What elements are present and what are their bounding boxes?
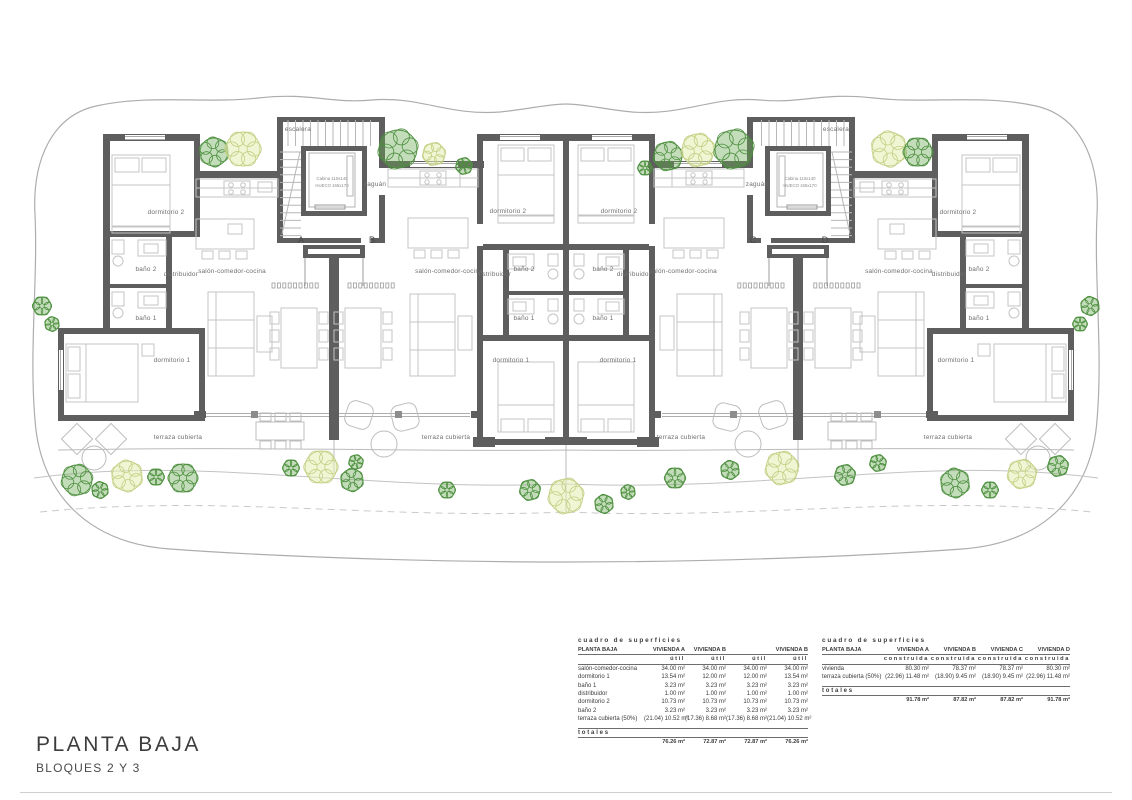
tree	[941, 468, 970, 498]
tree	[168, 464, 198, 492]
room-label-dormitorio1-b: dormitorio 1	[493, 357, 530, 364]
tree	[1072, 317, 1087, 331]
table-row-header: PLANTA BAJA	[578, 646, 644, 654]
table-value: 3.23 m²	[644, 682, 685, 690]
table-title: cuadro de superficies	[578, 637, 808, 644]
tree	[834, 464, 855, 485]
table-value: 80.30 m²	[882, 665, 929, 673]
table-value: (17.36) 8.68 m²	[726, 715, 767, 723]
room-label-dormitorio2-b: dormitorio 2	[490, 208, 527, 215]
section-mark-d: D	[822, 235, 829, 246]
table-value: (17.36) 8.68 m²	[685, 715, 726, 723]
table-value: 34.00 m²	[644, 665, 685, 673]
tree	[304, 451, 339, 483]
tree	[200, 137, 229, 167]
section-mark-b: B	[369, 235, 375, 246]
room-label-bano2-c: baño 2	[592, 266, 613, 273]
tree	[45, 316, 59, 331]
table-value: 12.00 m²	[726, 673, 767, 681]
tree	[92, 481, 108, 498]
table-row-label: vivienda	[822, 665, 882, 673]
table-value: 12.00 m²	[685, 673, 726, 681]
section-mark-a: A	[298, 235, 305, 246]
room-label-dormitorio2-d: dormitorio 2	[940, 209, 977, 216]
tree	[32, 297, 51, 315]
table-row-label: dormitorio 1	[578, 673, 644, 681]
tree	[282, 460, 299, 476]
floor-plan-sheet: dormitorio 2 baño 2 baño 1 distribuidor …	[0, 0, 1132, 800]
table-value: 34.00 m²	[767, 665, 808, 673]
elevator-label-1-line1: Cabina 110x140	[317, 176, 349, 181]
table-total-value: 87.82 m²	[929, 696, 976, 704]
table-sub-header: útil	[726, 655, 767, 663]
room-label-terraza-a: terraza cubierta	[154, 434, 203, 441]
table-row-label: terraza cubierta (50%)	[822, 673, 882, 681]
room-label-terraza-d: terraza cubierta	[924, 434, 973, 441]
tree	[621, 484, 635, 499]
room-label-bano1-d: baño 1	[968, 315, 989, 322]
table-value: 13.54 m²	[767, 673, 808, 681]
building-block-left	[58, 117, 569, 472]
table-row-label: baño 1	[578, 682, 644, 690]
table-col-header: VIVIENDA B	[685, 646, 726, 654]
room-label-zaguan-1: zaguán	[364, 181, 387, 188]
table-col-header: VIVIENDA D	[1023, 646, 1070, 654]
table-row-header: PLANTA BAJA	[822, 646, 882, 654]
room-label-distribuidor-c: distribuidor	[617, 271, 652, 278]
table-sub-header: construida	[929, 655, 976, 663]
page-subtitle: BLOQUES 2 Y 3	[36, 761, 201, 775]
table-totals-label: totales	[822, 687, 882, 695]
room-label-zaguan-2: zaguán	[746, 181, 769, 188]
tree	[595, 494, 614, 513]
tree	[1081, 296, 1100, 315]
table-value: 34.00 m²	[685, 665, 726, 673]
room-label-distribuidor-d: distribuidor	[932, 271, 967, 278]
room-label-bano1-b: baño 1	[513, 315, 534, 322]
table-sub-header: útil	[685, 655, 726, 663]
table-value: 10.73 m²	[767, 698, 808, 706]
tree	[872, 131, 907, 168]
room-label-escalera-2: escalera	[823, 126, 849, 133]
room-label-salon-c: salón-comedor-cocina	[649, 268, 717, 275]
table-col-header: VIVIENDA A	[882, 646, 929, 654]
surface-table-construida: cuadro de superficiesPLANTA BAJAVIVIENDA…	[822, 637, 1070, 704]
table-row-label: dormitorio 2	[578, 698, 644, 706]
room-label-dormitorio2-a: dormitorio 2	[148, 209, 185, 216]
table-row-label: baño 2	[578, 707, 644, 715]
table-totals-label: totales	[578, 729, 644, 737]
tree	[438, 482, 455, 498]
tree	[664, 468, 686, 488]
table-total-value: 87.82 m²	[976, 696, 1023, 704]
table-total-value: 91.78 m²	[1023, 696, 1070, 704]
table-value: (18.90) 9.45 m²	[976, 673, 1023, 681]
room-label-dormitorio2-c: dormitorio 2	[601, 208, 638, 215]
room-label-bano1-a: baño 1	[135, 315, 156, 322]
tree	[548, 478, 584, 514]
tree	[225, 132, 262, 166]
table-value: 1.00 m²	[767, 690, 808, 698]
room-label-bano2-b: baño 2	[513, 266, 534, 273]
tree	[519, 479, 540, 500]
tree	[112, 460, 143, 492]
room-label-dormitorio1-a: dormitorio 1	[154, 357, 191, 364]
room-label-distribuidor-a: distribuidor	[164, 271, 199, 278]
title-block: PLANTA BAJA BLOQUES 2 Y 3	[36, 733, 201, 775]
table-row-label: salón-comedor-cocina	[578, 665, 644, 673]
table-value: 1.00 m²	[685, 690, 726, 698]
table-value: 3.23 m²	[726, 707, 767, 715]
table-value: (22.96) 11.48 m²	[1023, 673, 1070, 681]
tree	[147, 469, 164, 485]
table-value: (22.96) 11.48 m²	[882, 673, 929, 681]
elevator-label-2-line1: Cabina 110x140	[785, 176, 817, 181]
room-label-salon-d: salón-comedor-cocina	[865, 268, 933, 275]
table-sub-header: construida	[882, 655, 929, 663]
table-sub-header: útil	[644, 655, 685, 663]
tree	[349, 455, 364, 470]
table-total-value: 91.78 m²	[882, 696, 929, 704]
table-value: 3.23 m²	[726, 682, 767, 690]
table-sub-header: útil	[767, 655, 808, 663]
furniture-unit-b	[334, 145, 558, 432]
room-label-dormitorio1-d: dormitorio 1	[938, 357, 975, 364]
table-row-label: distribuidor	[578, 690, 644, 698]
section-mark-c: C	[750, 235, 757, 246]
table-value: (21.04) 10.52 m²	[644, 715, 685, 723]
tree	[870, 455, 887, 472]
table-value: 1.00 m²	[726, 690, 767, 698]
terrace-furniture	[61, 399, 420, 470]
tree	[341, 468, 364, 492]
table-row-label: terraza cubierta (50%)	[578, 715, 644, 723]
table-value: 34.00 m²	[726, 665, 767, 673]
walls	[58, 117, 569, 447]
surface-table-util: cuadro de superficiesPLANTA BAJAVIVIENDA…	[578, 637, 808, 746]
room-label-bano2-a: baño 2	[135, 266, 156, 273]
elevator-label-1-line2: HUECO 165x170	[315, 183, 349, 188]
table-value: 78.37 m²	[976, 665, 1023, 673]
room-label-salon-b: salón-comedor-cocina	[415, 268, 483, 275]
table-value: 3.23 m²	[767, 707, 808, 715]
table-value: 10.73 m²	[644, 698, 685, 706]
tree	[903, 138, 933, 166]
tree	[456, 158, 473, 175]
tree	[1007, 459, 1037, 489]
table-col-header: VIVIENDA C	[976, 646, 1023, 654]
table-value: 1.00 m²	[644, 690, 685, 698]
table-total-value: 76.26 m²	[644, 738, 685, 746]
table-total-value: 76.26 m²	[767, 738, 808, 746]
elevator	[301, 146, 367, 216]
tree	[637, 161, 652, 175]
room-label-bano1-c: baño 1	[592, 315, 613, 322]
tree	[721, 460, 740, 479]
elevator-label-2-line2: HUECO 165x170	[783, 183, 817, 188]
page-title: PLANTA BAJA	[36, 733, 201, 757]
room-label-escalera-1: escalera	[285, 126, 311, 133]
table-value: 3.23 m²	[767, 682, 808, 690]
table-value: 10.73 m²	[726, 698, 767, 706]
table-value: 10.73 m²	[685, 698, 726, 706]
table-col-header: VIVIENDA B	[929, 646, 976, 654]
table-title: cuadro de superficies	[822, 637, 1070, 644]
room-label-salon-a: salón-comedor-cocina	[198, 268, 266, 275]
floor-plan-drawing: dormitorio 2 baño 2 baño 1 distribuidor …	[0, 0, 1132, 625]
room-label-bano2-d: baño 2	[968, 266, 989, 273]
table-value: (21.04) 10.52 m²	[767, 715, 808, 723]
table-value: 13.54 m²	[644, 673, 685, 681]
table-value: 78.37 m²	[929, 665, 976, 673]
table-col-header: VIVIENDA A	[644, 646, 685, 654]
table-value: 3.23 m²	[685, 682, 726, 690]
table-value: 3.23 m²	[685, 707, 726, 715]
room-label-terraza-c: terraza cubierta	[657, 434, 706, 441]
room-label-terraza-b: terraza cubierta	[422, 434, 471, 441]
table-total-value: 72.87 m²	[726, 738, 767, 746]
room-label-dormitorio1-c: dormitorio 1	[600, 357, 637, 364]
table-sub-header: construida	[976, 655, 1023, 663]
table-value: (18.90) 9.45 m²	[929, 673, 976, 681]
table-col-header: VIVIENDA B	[767, 646, 808, 654]
table-sub-header: construida	[1023, 655, 1070, 663]
tree	[981, 482, 998, 498]
table-total-value: 72.87 m²	[685, 738, 726, 746]
table-value: 80.30 m²	[1023, 665, 1070, 673]
footer-rule	[20, 792, 1112, 793]
table-value: 3.23 m²	[644, 707, 685, 715]
